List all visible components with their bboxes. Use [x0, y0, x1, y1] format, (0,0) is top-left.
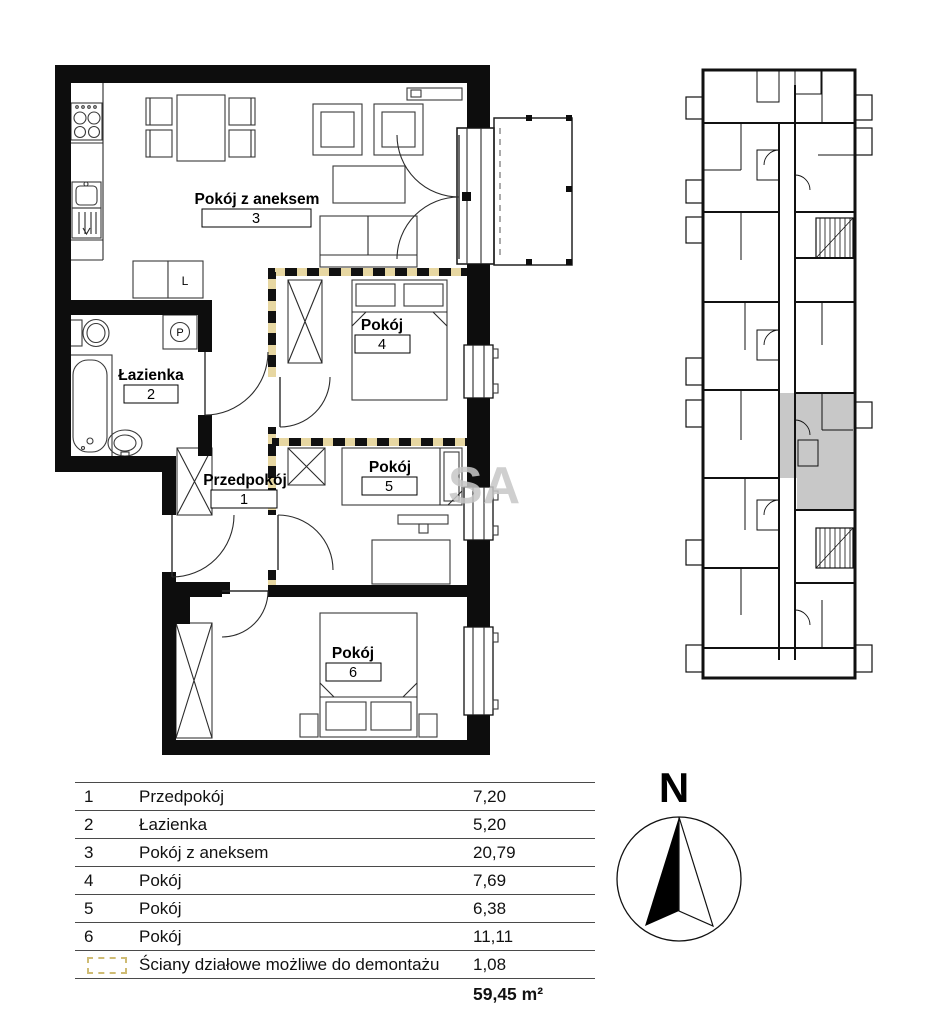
row-name: Ściany działowe możliwe do demontażu — [139, 955, 473, 975]
demountable-wall-swatch-cell — [75, 955, 139, 975]
window-room4 — [464, 345, 498, 398]
overview-door-arcs — [764, 150, 810, 625]
floorplan-page: { "plan": { "rooms": [ {"label": "Pokój … — [0, 0, 950, 971]
stove-icon — [71, 103, 102, 140]
svg-text:Pokój z aneksem: Pokój z aneksem — [195, 191, 320, 208]
row-name: Pokój z aneksem — [139, 843, 473, 863]
row-number: 3 — [75, 843, 139, 863]
table-row: 5 Pokój 6,38 — [75, 894, 595, 922]
row-area: 5,20 — [473, 815, 595, 835]
table-row: 6 Pokój 11,11 — [75, 922, 595, 950]
svg-text:5: 5 — [385, 479, 393, 495]
staircase-icon — [816, 218, 853, 258]
compass-needle-light — [679, 817, 713, 926]
row-number: 5 — [75, 899, 139, 919]
balcony — [494, 115, 572, 265]
row-area: 20,79 — [473, 843, 595, 863]
bathroom-door — [205, 352, 268, 415]
sofa-icon — [320, 216, 417, 267]
table-total-row: 59,45 m² — [75, 978, 595, 1009]
svg-text:Pokój: Pokój — [332, 645, 374, 662]
bathtub-icon — [68, 355, 112, 458]
compass: N — [617, 764, 741, 941]
toilet-icon — [69, 320, 109, 347]
room4-door — [280, 377, 330, 427]
svg-text:3: 3 — [252, 211, 260, 227]
walls — [55, 65, 490, 755]
room6-door — [222, 591, 268, 637]
compass-needle-dark — [645, 817, 679, 926]
svg-text:6: 6 — [349, 665, 357, 681]
row-name: Pokój — [139, 899, 473, 919]
row-number: 4 — [75, 871, 139, 891]
room-label-6: Pokój 6 — [326, 645, 381, 681]
row-number: 2 — [75, 815, 139, 835]
room-label-living: Pokój z aneksem 3 — [195, 191, 320, 227]
bathroom-sink-icon — [108, 430, 142, 457]
svg-text:Łazienka: Łazienka — [118, 367, 184, 384]
living-room-furniture — [313, 88, 462, 267]
highlighted-unit — [779, 393, 853, 510]
row-area: 1,08 — [473, 955, 595, 975]
svg-text:Przedpokój: Przedpokój — [203, 472, 287, 489]
wardrobe-icon — [288, 280, 322, 363]
row-name: Pokój — [139, 871, 473, 891]
dining-table-icon — [146, 95, 255, 161]
row-area: 11,11 — [473, 927, 595, 947]
svg-text:Pokój: Pokój — [369, 459, 411, 476]
table-row-demountable: Ściany działowe możliwe do demontażu 1,0… — [75, 950, 595, 978]
table-row: 1 Przedpokój 7,20 — [75, 782, 595, 810]
tv-board-icon — [407, 88, 462, 100]
fridge-cabinet-icon: L — [133, 261, 203, 298]
compass-label: N — [659, 764, 689, 811]
fridge-label: L — [182, 274, 189, 288]
total-area: 59,45 m² — [473, 984, 595, 1005]
desk-icon — [372, 515, 450, 584]
row-number: 1 — [75, 787, 139, 807]
entrance-door — [172, 515, 234, 577]
row-name: Pokój — [139, 927, 473, 947]
row-name: Łazienka — [139, 815, 473, 835]
row-area: 6,38 — [473, 899, 595, 919]
area-table: 1 Przedpokój 7,20 2 Łazienka 5,20 3 Pokó… — [75, 782, 595, 1009]
wardrobe-icon — [288, 448, 325, 485]
washer-label: P — [176, 327, 183, 339]
svg-text:2: 2 — [147, 387, 155, 403]
kitchen-sink-icon — [72, 182, 101, 238]
room-label-5: Pokój 5 — [362, 459, 417, 495]
watermark-text: SA — [448, 457, 520, 515]
svg-text:1: 1 — [240, 492, 248, 508]
wardrobe-icon — [176, 623, 212, 738]
room-label-bathroom: Łazienka 2 — [118, 367, 184, 403]
room-label-4: Pokój 4 — [355, 317, 410, 353]
building-overview — [686, 70, 872, 678]
table-row: 4 Pokój 7,69 — [75, 866, 595, 894]
row-area: 7,69 — [473, 871, 595, 891]
washing-machine-icon: P — [163, 315, 197, 349]
armchair-icon — [313, 104, 362, 155]
apartment-plan: L — [55, 65, 572, 755]
table-row: 2 Łazienka 5,20 — [75, 810, 595, 838]
room5-door — [278, 515, 333, 570]
corridor-walls — [779, 85, 795, 660]
row-area: 7,20 — [473, 787, 595, 807]
coffee-table-icon — [333, 166, 405, 203]
room6-furniture — [176, 613, 437, 738]
window-room6 — [464, 627, 498, 715]
row-number: 6 — [75, 927, 139, 947]
table-row: 3 Pokój z aneksem 20,79 — [75, 838, 595, 866]
room-label-hallway: Przedpokój 1 — [203, 472, 287, 508]
staircase-icon — [816, 528, 853, 568]
row-name: Przedpokój — [139, 787, 473, 807]
svg-text:4: 4 — [378, 337, 386, 353]
svg-text:Pokój: Pokój — [361, 317, 403, 334]
